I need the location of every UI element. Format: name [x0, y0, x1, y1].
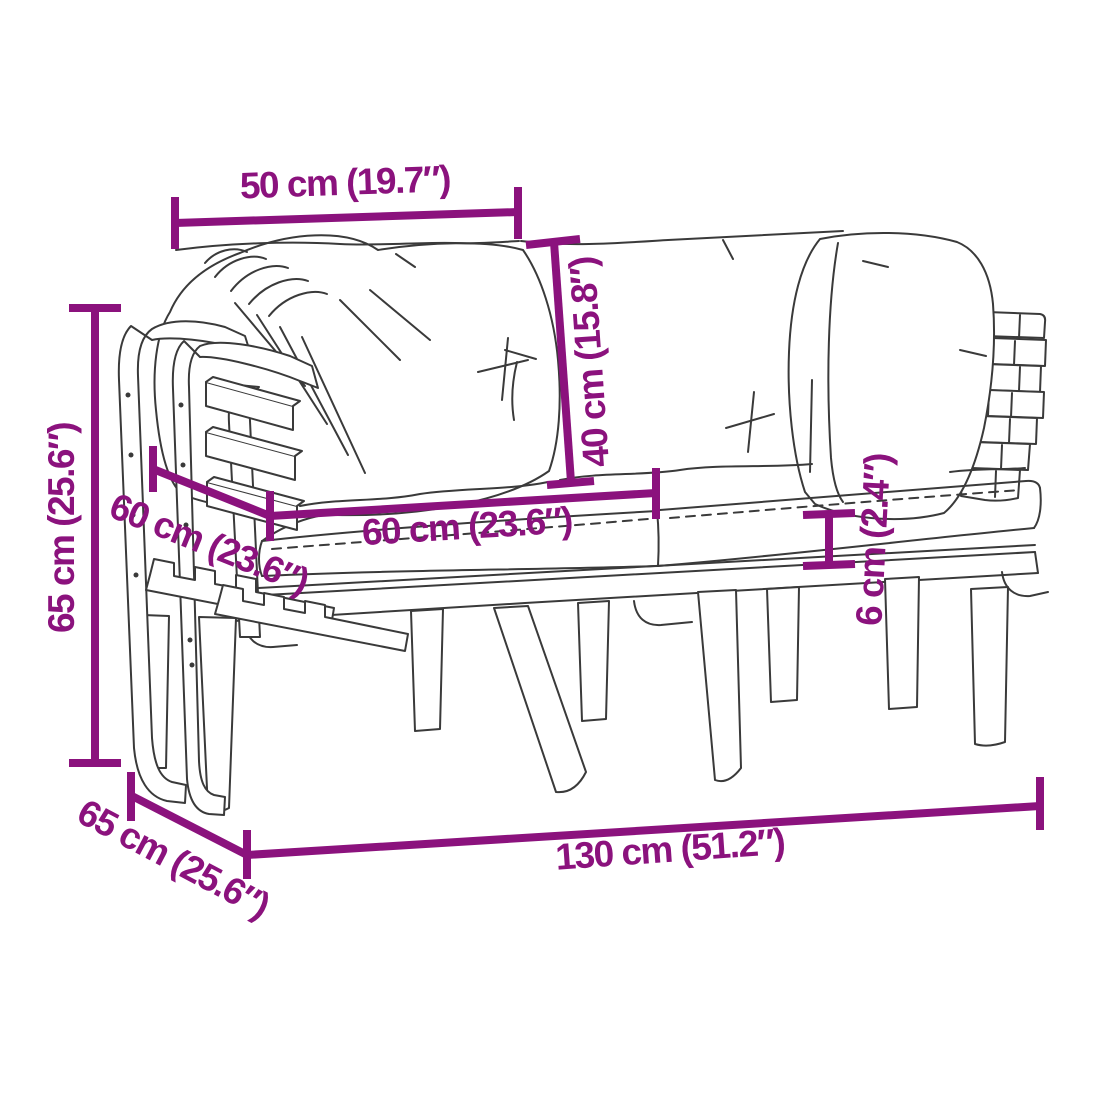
dim-label-overall-height: 65 cm (25.6″) [41, 423, 82, 633]
dimension-diagram: 50 cm (19.7″) 40 cm (15.8″) 65 cm (25.6″… [0, 0, 1100, 1100]
sofa-leg [698, 590, 741, 781]
sofa-dimension-diagram-svg: 50 cm (19.7″) 40 cm (15.8″) 65 cm (25.6″… [0, 0, 1100, 1100]
dim-label-back-cushion-width: 50 cm (19.7″) [239, 158, 451, 206]
left-back-pillow [155, 235, 560, 515]
sofa-leg [199, 617, 236, 812]
sofa-leg [578, 601, 609, 721]
dim-tick [803, 564, 855, 566]
dim-label-overall-width: 130 cm (51.2″) [554, 821, 786, 878]
dim-tick [547, 481, 594, 485]
sofa-leg [971, 587, 1008, 746]
sofa-leg [494, 606, 586, 792]
dim-tick [803, 513, 855, 515]
sofa-leg [411, 609, 443, 731]
dim-line [175, 212, 518, 223]
sofa-leg [767, 587, 799, 702]
